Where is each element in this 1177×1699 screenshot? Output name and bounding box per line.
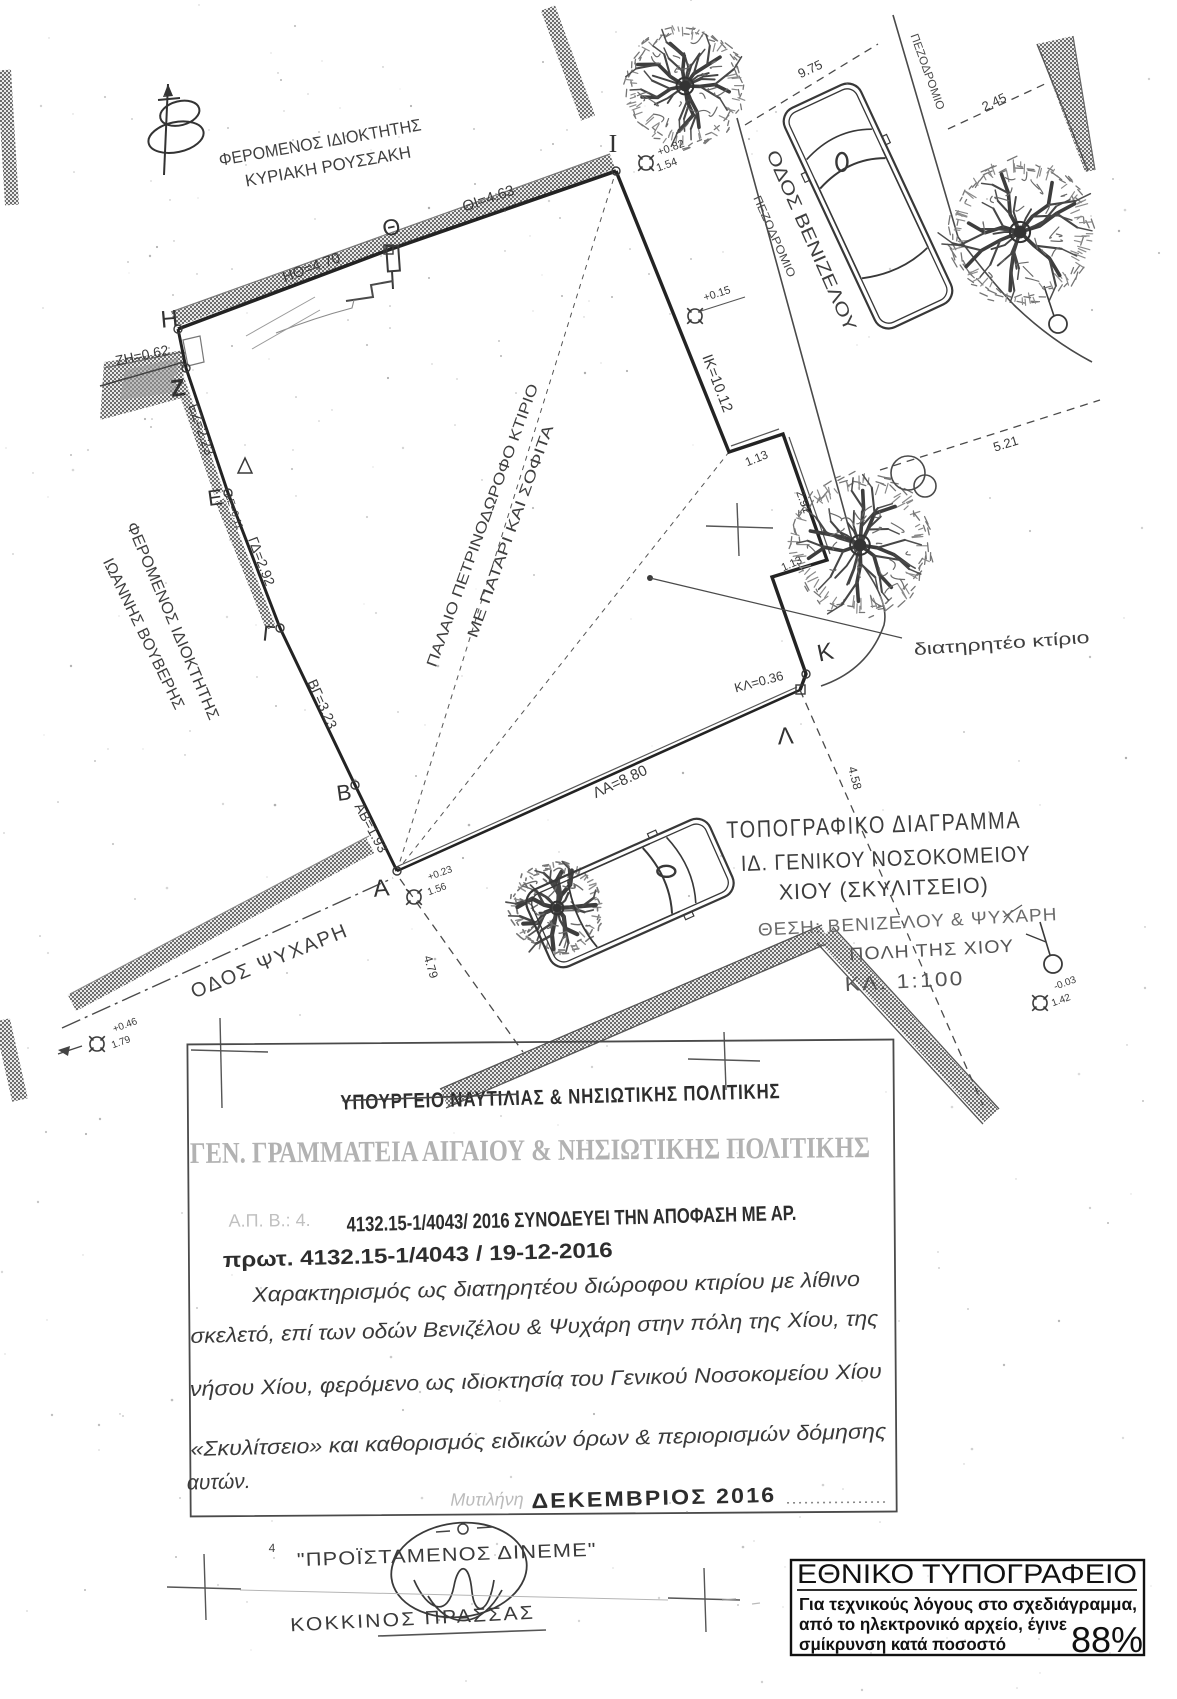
svg-text:ΕΘΝΙΚΟ ΤΥΠΟΓΡΑΦΕΙΟ: ΕΘΝΙΚΟ ΤΥΠΟΓΡΑΦΕΙΟ (797, 1559, 1137, 1589)
svg-text:Για τεχνικούς λόγους στο σχεδι: Για τεχνικούς λόγους στο σχεδιάγραμμα, (799, 1594, 1137, 1614)
svg-text:Α.Π. Β.: 4.: Α.Π. Β.: 4. (228, 1210, 310, 1231)
svg-text:88%: 88% (1071, 1619, 1143, 1660)
svg-text:σμίκρυνση κατά ποσοστό: σμίκρυνση κατά ποσοστό (799, 1634, 1006, 1654)
svg-text:Α: Α (372, 874, 391, 903)
svg-text:ΓΕΝ. ΓΡΑΜΜΑΤΕΙΑ ΑΙΓΑΙΟΥ & ΝΗΣΙ: ΓΕΝ. ΓΡΑΜΜΑΤΕΙΑ ΑΙΓΑΙΟΥ & ΝΗΣΙΩΤΙΚΗΣ ΠΟΛ… (190, 1131, 870, 1170)
svg-text:Μυτιλήνη: Μυτιλήνη (450, 1489, 524, 1510)
svg-text:Ι: Ι (609, 129, 618, 158)
svg-text:από το ηλεκτρονικό αρχείο, έγι: από το ηλεκτρονικό αρχείο, έγινε (799, 1614, 1068, 1634)
svg-text:αυτών.: αυτών. (187, 1470, 251, 1495)
svg-text:Λ: Λ (777, 722, 795, 750)
svg-text:Η: Η (160, 305, 180, 333)
svg-text:4: 4 (269, 1541, 276, 1555)
